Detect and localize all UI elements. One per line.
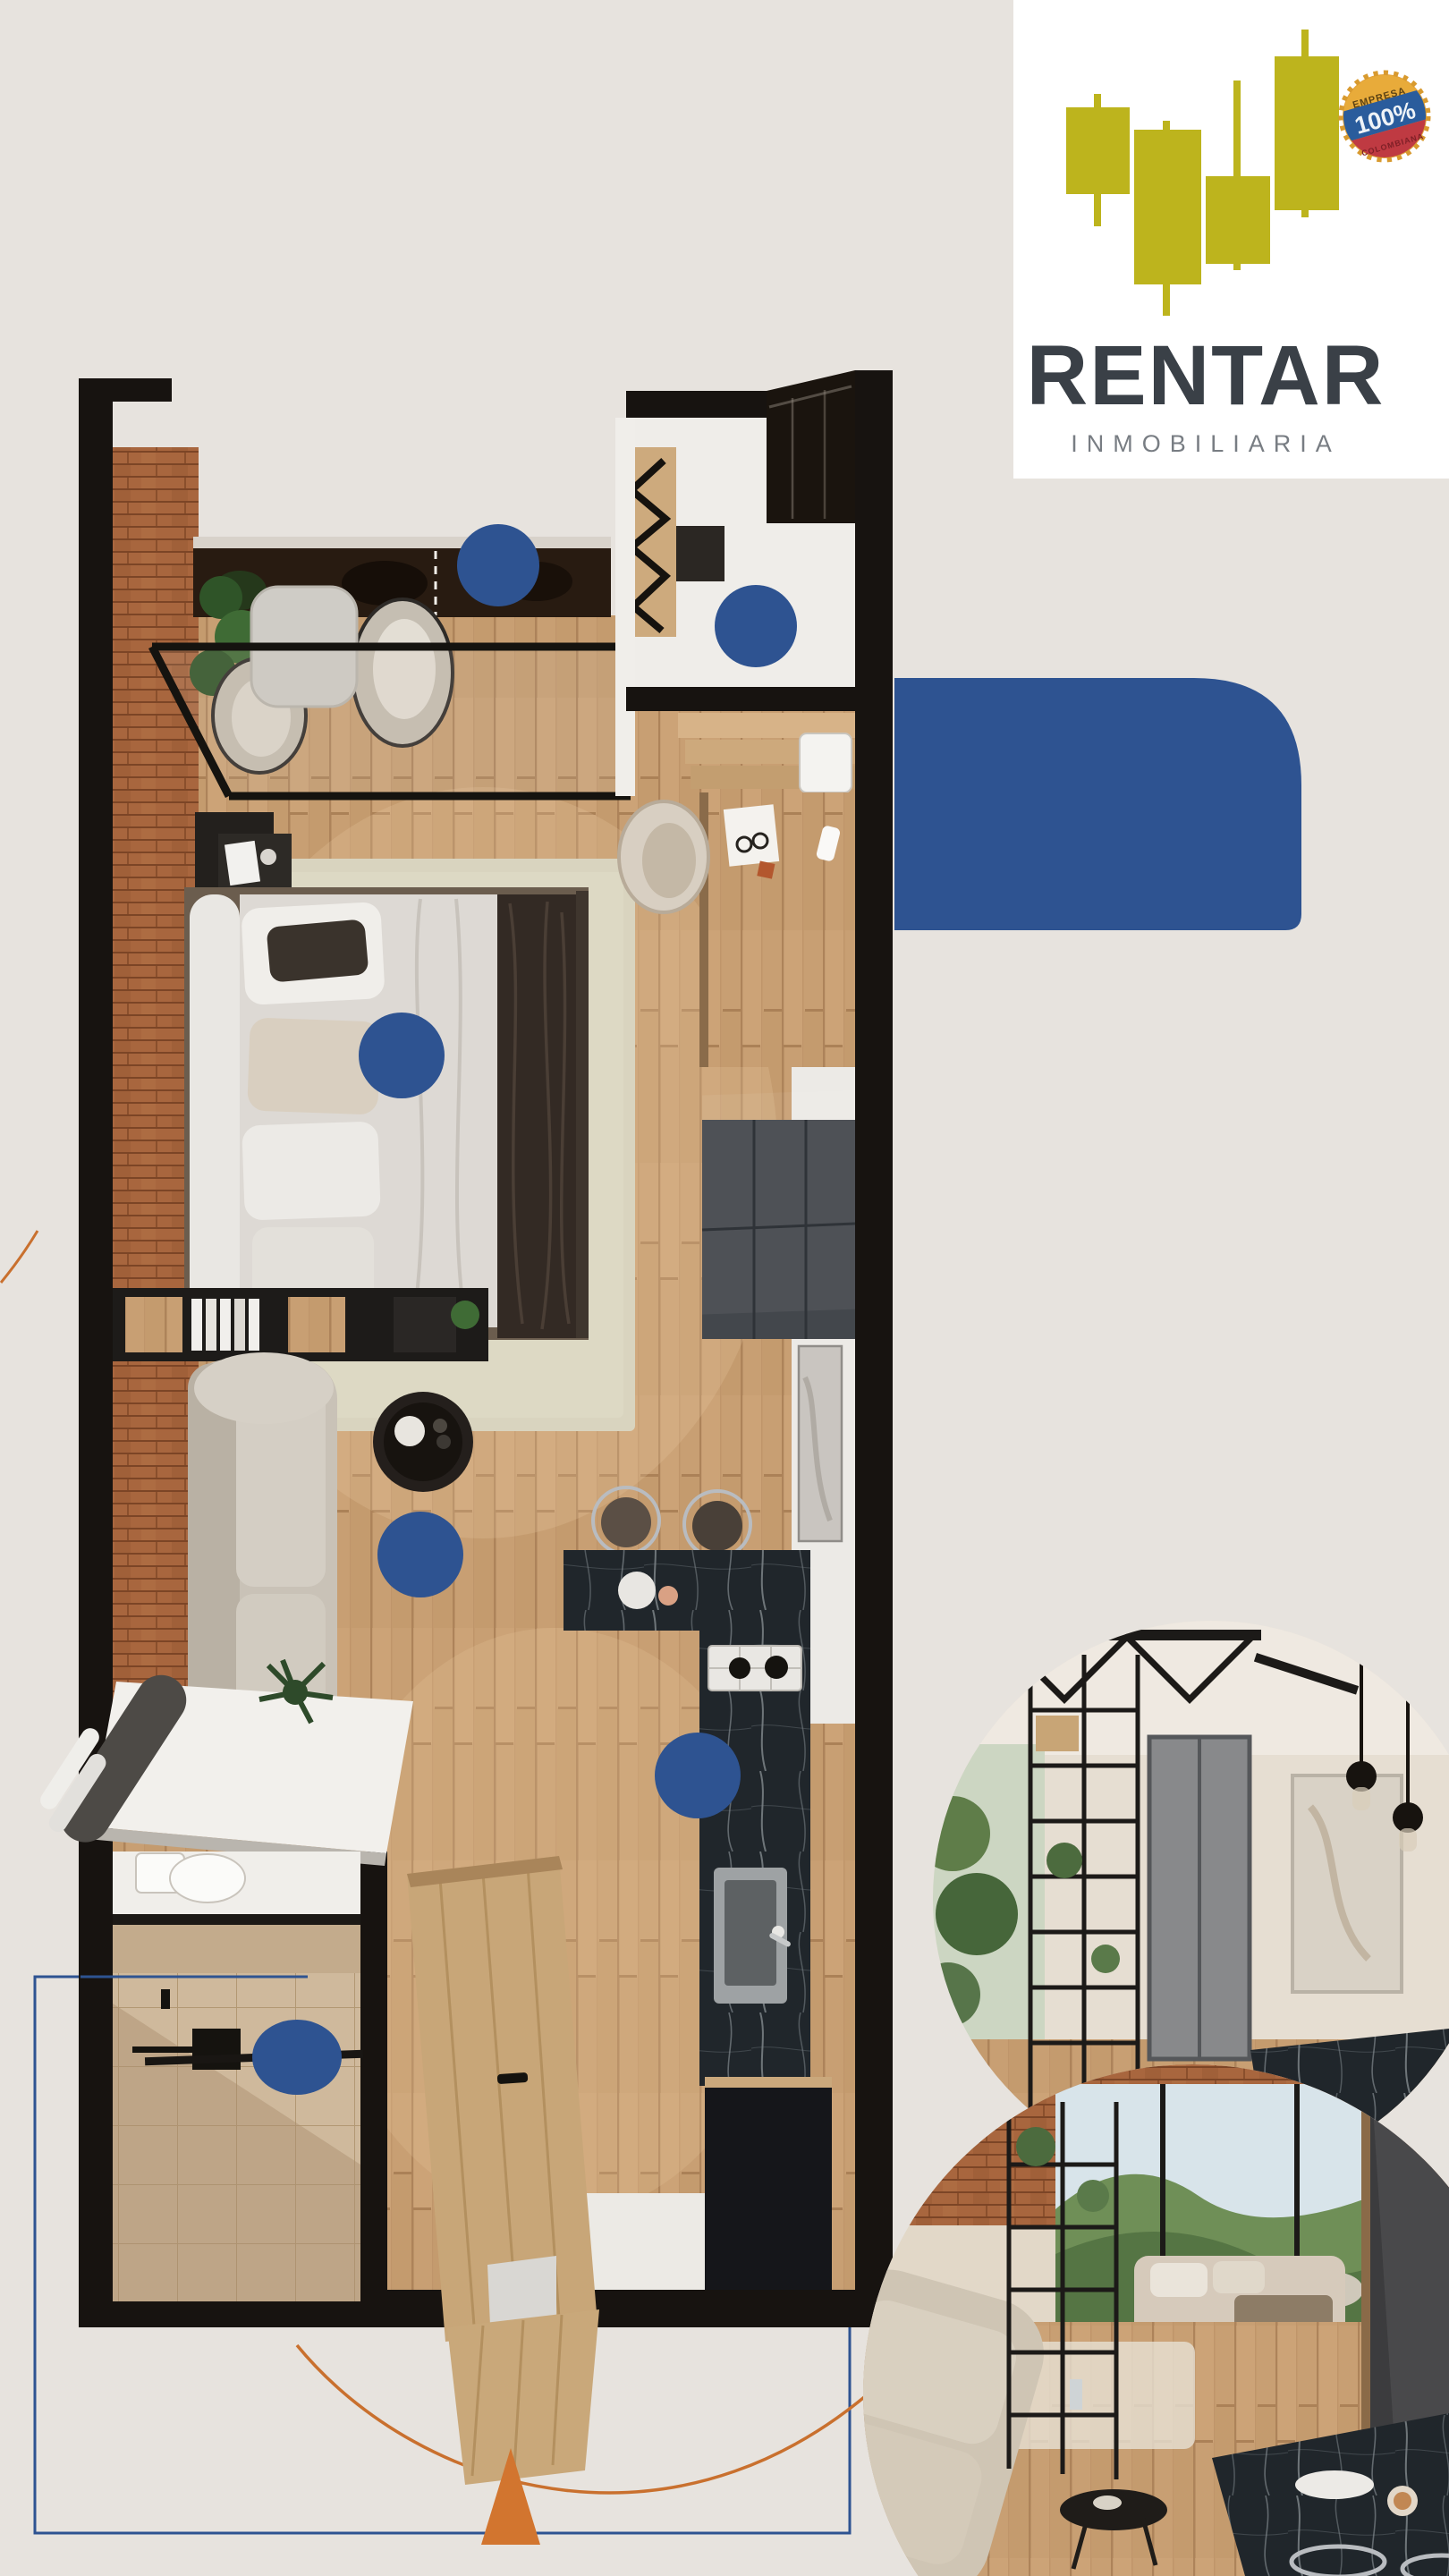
shower-arm — [132, 2046, 193, 2053]
wall-bathroom-right — [360, 1851, 387, 2327]
photo2-latte — [1394, 2492, 1411, 2510]
wall-entry-top — [626, 391, 769, 418]
flyer-canvas: EMPRESA 100% COLOMBIANA RENTAR INMOBILIA… — [0, 0, 1449, 2576]
shelf-plant — [451, 1301, 479, 1329]
entry-wall-white — [615, 418, 635, 796]
marker-kitchen — [655, 1733, 741, 1818]
paper-sheet — [724, 804, 779, 867]
blue-rounded-shape — [894, 678, 1301, 930]
bed — [184, 887, 589, 1340]
sofa-arm-top — [194, 1352, 334, 1424]
photo2-coffee-table — [1060, 2489, 1167, 2530]
wardrobe — [702, 1090, 855, 1339]
entry-window-glass — [767, 370, 855, 523]
shower-glass-top — [113, 1914, 360, 1925]
wall-entry-bottom — [626, 687, 855, 711]
copper-item — [757, 861, 775, 879]
photo2-plant-1 — [1016, 2127, 1055, 2166]
pillow-dark — [267, 919, 369, 982]
sideboard-shelf — [113, 1288, 488, 1361]
books — [191, 1299, 259, 1351]
entry-appliance — [676, 526, 724, 581]
kitchen-counter — [699, 1630, 810, 2086]
vanity-chair-seat — [642, 823, 696, 898]
shower-wall-tiles — [113, 1925, 360, 1973]
glass-partition — [152, 647, 631, 796]
headboard — [190, 894, 240, 1333]
photo1-shelf-plant — [1046, 1843, 1082, 1878]
flyer-graphic: EMPRESA 100% COLOMBIANA RENTAR INMOBILIA… — [0, 0, 1449, 2576]
book — [225, 841, 260, 885]
photo2-plant-2 — [1077, 2180, 1109, 2212]
table-cup — [394, 1416, 425, 1446]
kitchen-sink — [714, 1868, 792, 2004]
wall-right — [855, 370, 893, 2327]
wall-art-frame — [799, 1346, 842, 1541]
wall-left — [79, 391, 113, 2327]
balcony-glass-edge — [193, 537, 611, 548]
kitchen-cabinet — [705, 2088, 832, 2290]
coffee-table — [373, 1392, 473, 1492]
brand-name: RENTAR — [1027, 328, 1385, 423]
photo1-wall-art — [1292, 1775, 1402, 1992]
glass-reflection — [342, 561, 428, 606]
stove — [708, 1646, 801, 1690]
vanity-desk — [699, 792, 855, 1067]
cabinet-wood-edge — [705, 2077, 832, 2088]
pillow-3 — [241, 1121, 381, 1220]
bed-frame-edge — [576, 891, 589, 1338]
marker-entry — [715, 585, 797, 667]
marker-balcony — [457, 524, 539, 606]
marker-living-room — [377, 1512, 463, 1597]
marker-bathroom — [252, 2020, 342, 2095]
door-floor-gray — [487, 2256, 556, 2326]
kitchen-island — [563, 1550, 810, 1631]
brand-tagline: INMOBILIARIA — [1071, 430, 1341, 457]
water-heater — [800, 733, 852, 792]
entry-white-floor — [581, 2193, 705, 2290]
plate — [618, 1572, 656, 1609]
logo-box: EMPRESA 100% COLOMBIANA RENTAR INMOBILIA… — [1013, 0, 1449, 479]
cup — [658, 1586, 678, 1606]
photo2-plate — [1295, 2470, 1374, 2499]
photo2-bottle — [1070, 2379, 1082, 2410]
marker-bedroom — [359, 1013, 445, 1098]
